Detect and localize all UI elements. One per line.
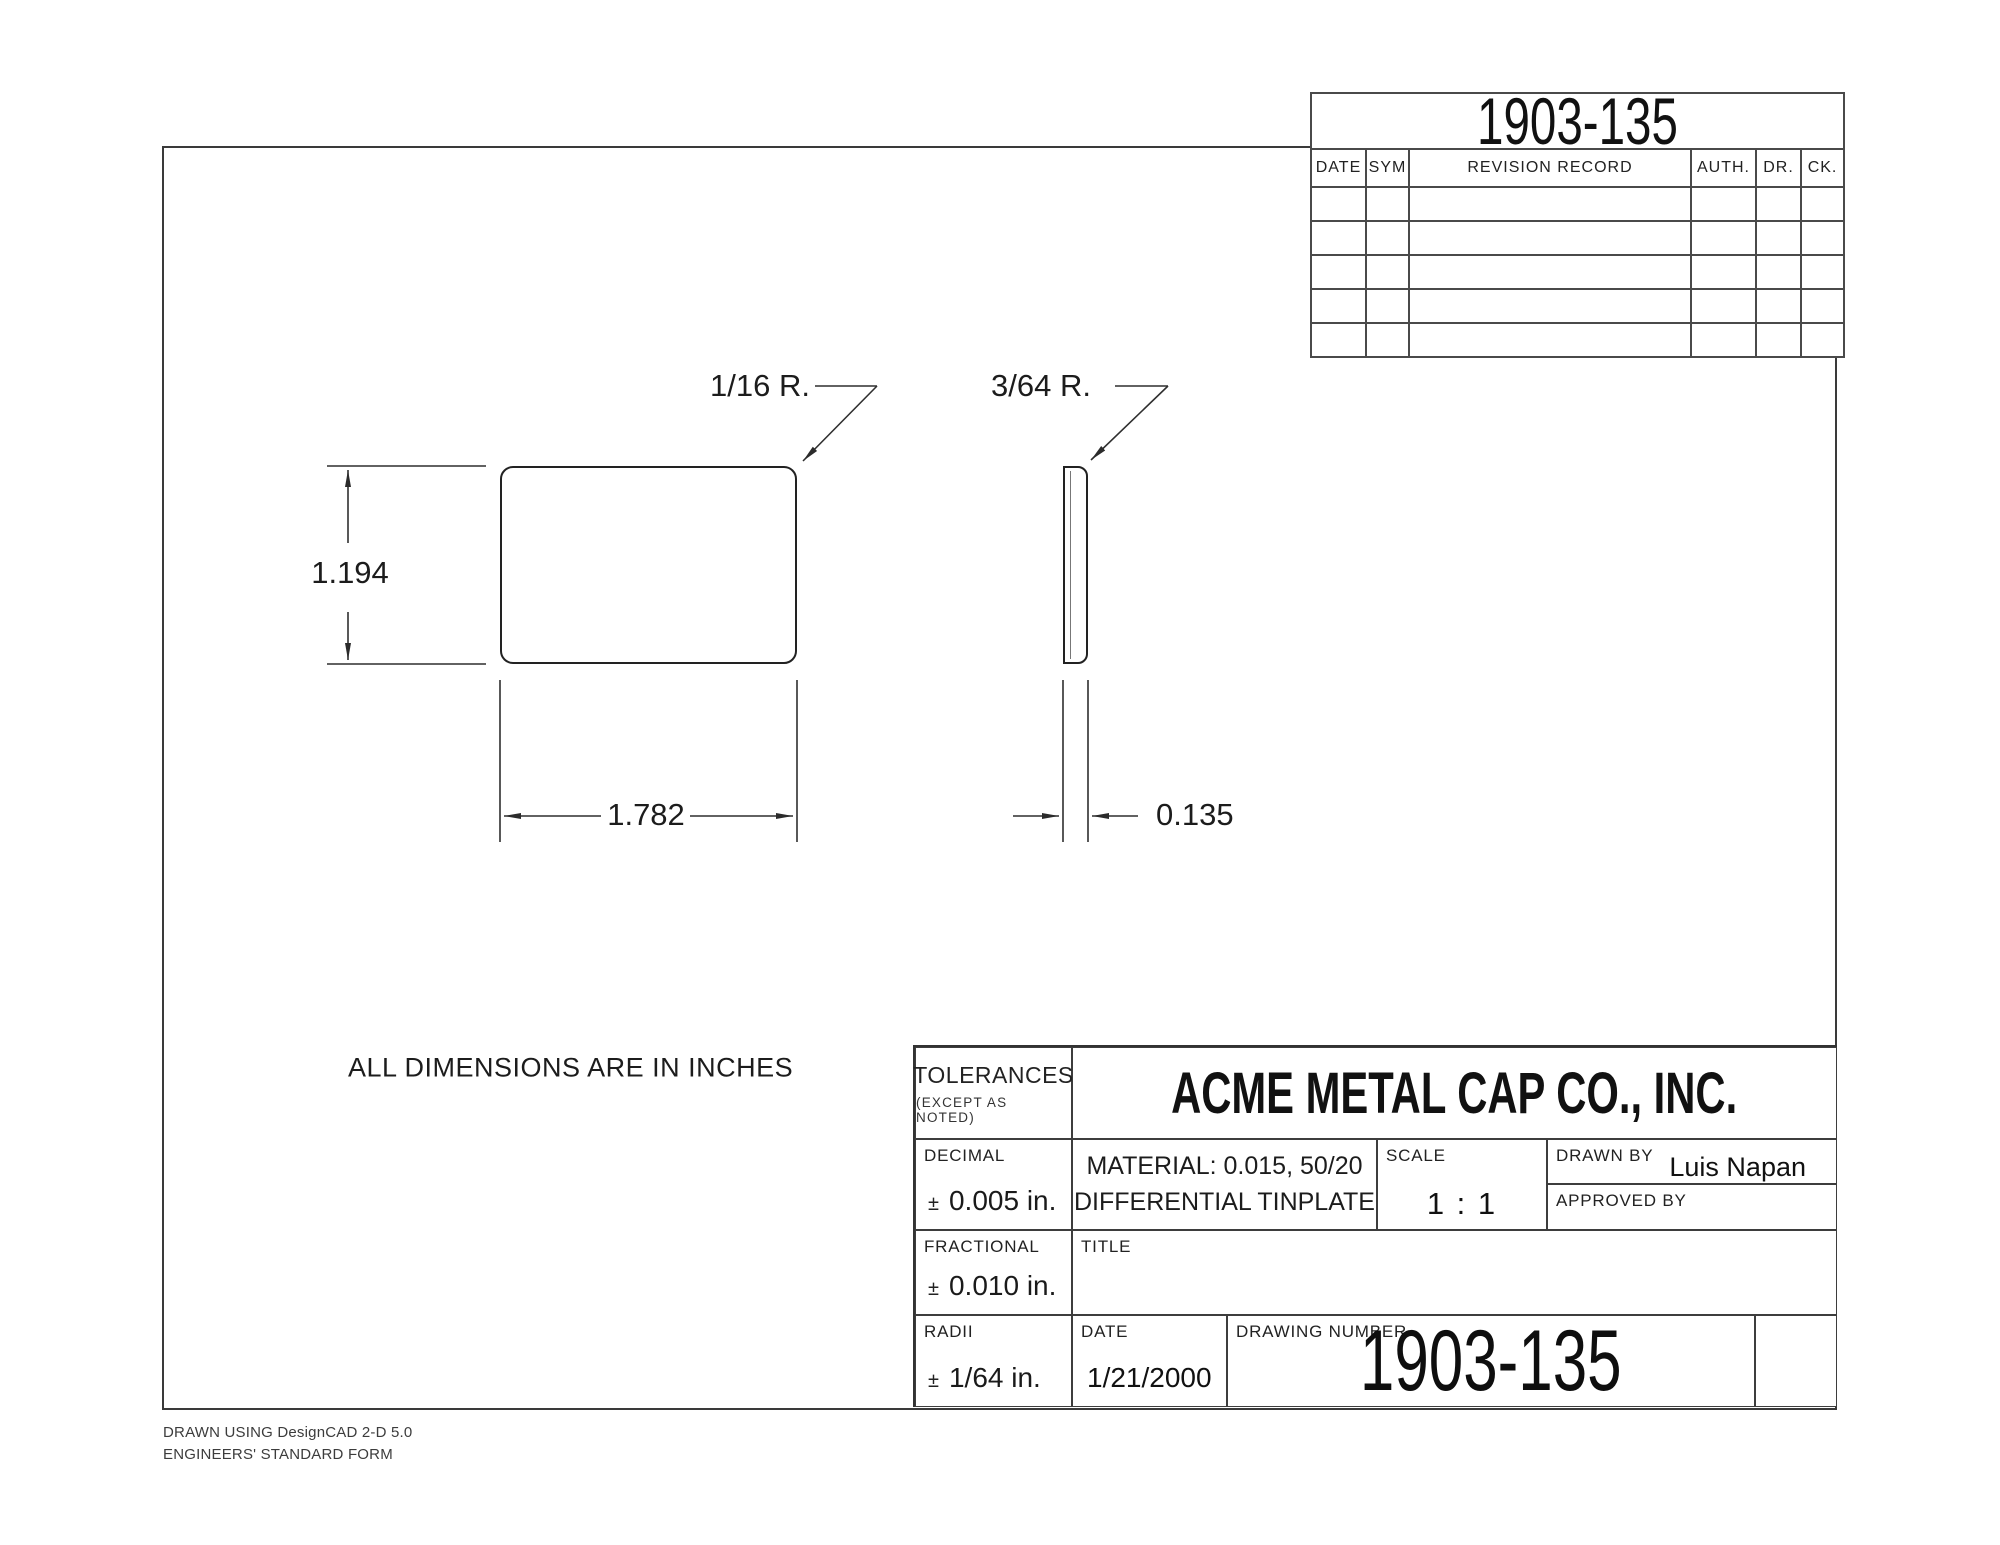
revision-col-auth: AUTH. — [1691, 149, 1756, 187]
decimal-value: 0.005 in. — [949, 1185, 1056, 1217]
revision-table-title: 1903-135 — [1311, 93, 1844, 149]
footer-fine-print: DRAWN USING DesignCAD 2-D 5.0 ENGINEERS'… — [163, 1422, 412, 1466]
scale-cell: SCALE 1 : 1 — [1377, 1139, 1547, 1230]
callout-side-radius-label: 3/64 R. — [987, 368, 1095, 404]
fractional-value: 0.010 in. — [949, 1270, 1056, 1302]
plus-minus-sign: ± — [928, 1278, 939, 1301]
revision-title-row: 1903-135 — [1311, 93, 1844, 149]
revision-col-dr: DR. — [1756, 149, 1801, 187]
revision-empty-row — [1311, 187, 1844, 221]
side-view-inner-line — [1070, 471, 1071, 659]
revision-empty-row — [1311, 323, 1844, 357]
revision-empty-row — [1311, 289, 1844, 323]
approved-by-label: APPROVED BY — [1556, 1191, 1687, 1211]
footer-line1: DRAWN USING DesignCAD 2-D 5.0 — [163, 1422, 412, 1444]
drawing-sheet: 1903-135 DATE SYM REVISION RECORD AUTH. … — [0, 0, 2000, 1545]
drawing-number-cell: DRAWING NUMBER 1903-135 — [1227, 1315, 1755, 1407]
company-name: ACME METAL CAP CO., INC. — [1171, 1060, 1737, 1127]
revision-col-sym: SYM — [1366, 149, 1409, 187]
dim-height-label: 1.194 — [307, 555, 393, 591]
date-cell: DATE 1/21/2000 — [1072, 1315, 1227, 1407]
callout-front-radius-label: 1/16 R. — [706, 368, 814, 404]
revision-table: 1903-135 DATE SYM REVISION RECORD AUTH. … — [1310, 92, 1845, 358]
revision-col-record: REVISION RECORD — [1409, 149, 1691, 187]
title-cell: TITLE — [1072, 1230, 1837, 1315]
revision-empty-row — [1311, 255, 1844, 289]
title-block: TOLERANCES (EXCEPT AS NOTED) ACME METAL … — [913, 1045, 1837, 1407]
drawn-by-label: DRAWN BY — [1556, 1146, 1653, 1166]
tolerances-sublabel: (EXCEPT AS NOTED) — [916, 1095, 1071, 1125]
tolerances-label: TOLERANCES — [913, 1062, 1074, 1089]
material-cell: MATERIAL: 0.015, 50/20 DIFFERENTIAL TINP… — [1072, 1139, 1377, 1230]
material-line2: DIFFERENTIAL TINPLATE — [1074, 1188, 1375, 1217]
plus-minus-sign: ± — [928, 1370, 939, 1393]
front-view-outline — [500, 466, 797, 664]
revision-header-row: DATE SYM REVISION RECORD AUTH. DR. CK. — [1311, 149, 1844, 187]
date-label: DATE — [1081, 1322, 1128, 1342]
material-line1: MATERIAL: 0.015, 50/20 — [1086, 1152, 1362, 1181]
blank-end-cell — [1755, 1315, 1837, 1407]
plus-minus-sign: ± — [928, 1193, 939, 1216]
units-note: ALL DIMENSIONS ARE IN INCHES — [348, 1053, 793, 1084]
revision-col-date: DATE — [1311, 149, 1366, 187]
tolerances-cell: TOLERANCES (EXCEPT AS NOTED) — [915, 1047, 1072, 1139]
side-view-outline — [1063, 466, 1088, 664]
radii-value: 1/64 in. — [949, 1362, 1041, 1394]
footer-line2: ENGINEERS' STANDARD FORM — [163, 1444, 412, 1466]
title-label: TITLE — [1081, 1237, 1131, 1257]
drawn-by-cell: DRAWN BY Luis Napan — [1547, 1139, 1837, 1184]
dim-width-label: 1.782 — [603, 797, 689, 833]
company-cell: ACME METAL CAP CO., INC. — [1072, 1047, 1837, 1139]
fractional-label: FRACTIONAL — [924, 1237, 1040, 1257]
revision-col-ck: CK. — [1801, 149, 1844, 187]
decimal-tolerance-cell: DECIMAL ± 0.005 in. — [915, 1139, 1072, 1230]
scale-value: 1 : 1 — [1378, 1186, 1546, 1222]
scale-label: SCALE — [1386, 1146, 1446, 1166]
radii-tolerance-cell: RADII ± 1/64 in. — [915, 1315, 1072, 1407]
decimal-label: DECIMAL — [924, 1146, 1005, 1166]
drawing-number-value: 1903-135 — [1360, 1312, 1622, 1411]
date-value: 1/21/2000 — [1087, 1362, 1212, 1394]
drawn-by-value: Luis Napan — [1669, 1152, 1806, 1183]
revision-empty-row — [1311, 221, 1844, 255]
dim-thickness-label: 0.135 — [1152, 797, 1238, 833]
fractional-tolerance-cell: FRACTIONAL ± 0.010 in. — [915, 1230, 1072, 1315]
approved-by-cell: APPROVED BY — [1547, 1184, 1837, 1230]
radii-label: RADII — [924, 1322, 973, 1342]
